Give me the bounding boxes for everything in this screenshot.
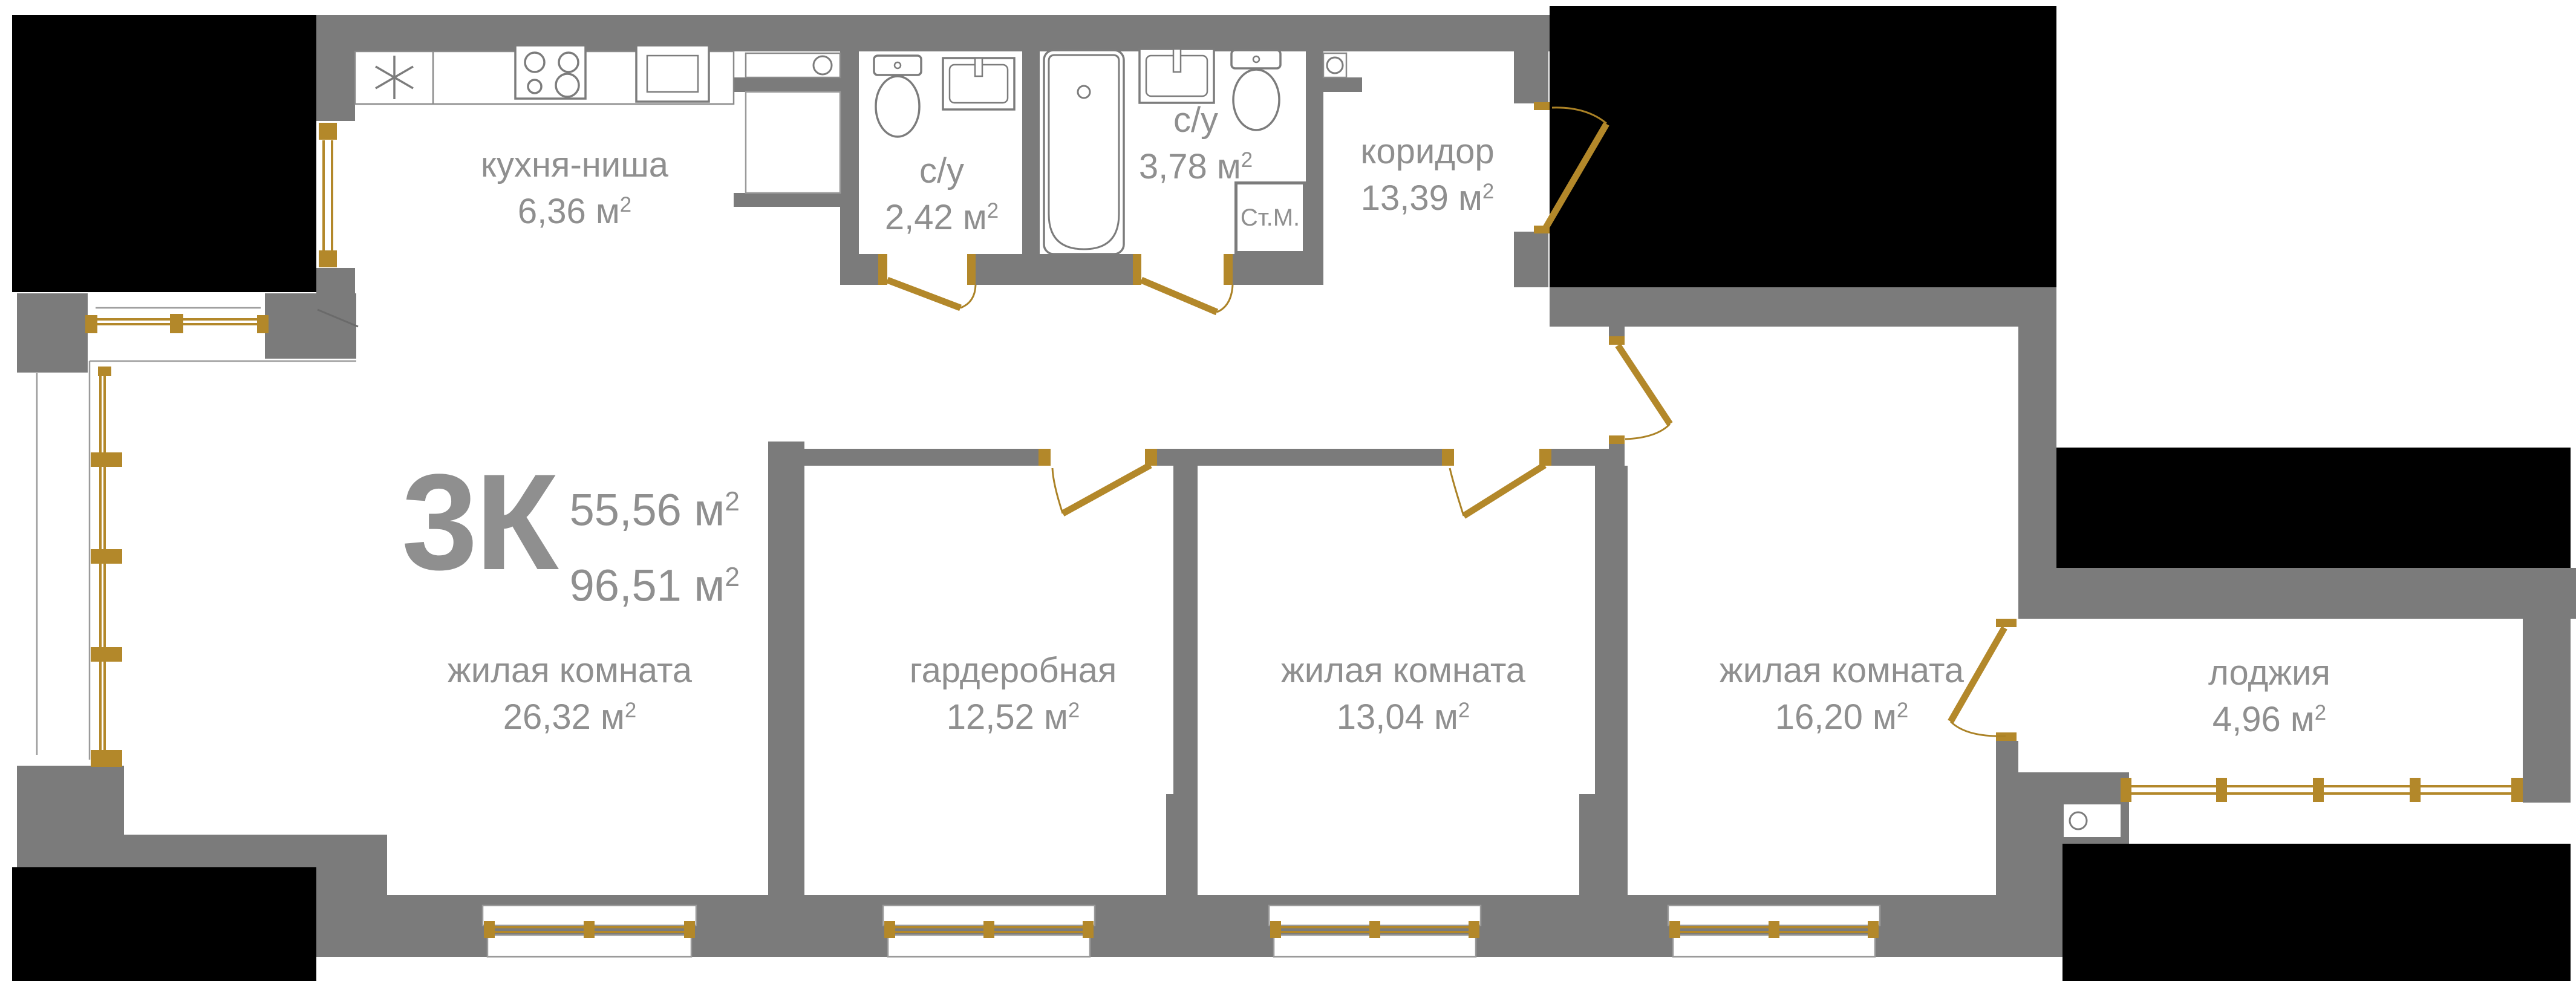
- apartment-areas: 55,56 м2 96,51 м2: [570, 464, 740, 620]
- apartment-type-label: 3К: [402, 464, 556, 579]
- room-area: 13,39 м2: [1240, 172, 1615, 218]
- room-name: жилая комната: [1216, 651, 1591, 691]
- door-bedroom2: [1442, 449, 1551, 516]
- window-living: [483, 905, 696, 957]
- door-wardrobe: [1039, 449, 1157, 513]
- room-area: 16,20 м2: [1654, 691, 2029, 737]
- room-area: 4,96 м2: [2082, 693, 2457, 740]
- label-bedroom2: жилая комната 13,04 м2: [1216, 651, 1591, 737]
- door-bath2: [1133, 254, 1233, 312]
- label-corridor: коридор 13,39 м2: [1240, 132, 1615, 218]
- room-area: 2,42 м2: [754, 191, 1129, 238]
- bay-railing-top: [85, 314, 269, 333]
- toilet-1: [874, 56, 921, 137]
- bay-railing-left: [91, 367, 122, 767]
- window-bedroom3: [1668, 905, 1880, 957]
- room-area: 26,32 м2: [382, 691, 757, 737]
- bay-reveal-lines: [37, 308, 356, 760]
- apartment-living-area: 55,56 м2: [570, 468, 740, 544]
- kitchen-sink: [636, 45, 709, 102]
- stove-icon: [515, 45, 585, 99]
- label-loggia: лоджия 4,96 м2: [2082, 653, 2457, 740]
- window-bedroom2: [1269, 905, 1481, 957]
- loggia-railing: [2121, 778, 2523, 802]
- room-name: жилая комната: [382, 651, 757, 691]
- window-kitchen-left: [316, 121, 355, 268]
- floor-plan: Ст.М. 3К 55,56 м2 96,51 м2 кухня-ниша 6,…: [0, 0, 2576, 981]
- window-wardrobe: [883, 905, 1095, 957]
- sink-2: [1140, 49, 1214, 103]
- sink-1: [943, 58, 1014, 109]
- room-area: 6,36 м2: [387, 185, 762, 232]
- apartment-total-area: 96,51 м2: [570, 544, 740, 619]
- room-name: коридор: [1240, 132, 1615, 172]
- apartment-summary: 3К 55,56 м2 96,51 м2: [402, 464, 740, 620]
- room-area: 13,04 м2: [1216, 691, 1591, 737]
- label-kitchen: кухня-ниша 6,36 м2: [387, 145, 762, 232]
- room-name: лоджия: [2082, 653, 2457, 693]
- vent-shaft-kitchen: [746, 53, 840, 77]
- room-name: жилая комната: [1654, 651, 2029, 691]
- room-name: кухня-ниша: [387, 145, 762, 185]
- door-bedroom3: [1609, 336, 1670, 444]
- vent-shaft-loggia: [2064, 804, 2121, 837]
- label-bedroom3: жилая комната 16,20 м2: [1654, 651, 2029, 737]
- label-wardrobe: гардеробная 12,52 м2: [826, 651, 1201, 737]
- label-living: жилая комната 26,32 м2: [382, 651, 757, 737]
- door-bath1: [878, 254, 976, 308]
- vent-shaft-bath2: [1323, 53, 1346, 77]
- bay-corner-diagonal: [318, 310, 358, 327]
- room-name: гардеробная: [826, 651, 1201, 691]
- room-area: 12,52 м2: [826, 691, 1201, 737]
